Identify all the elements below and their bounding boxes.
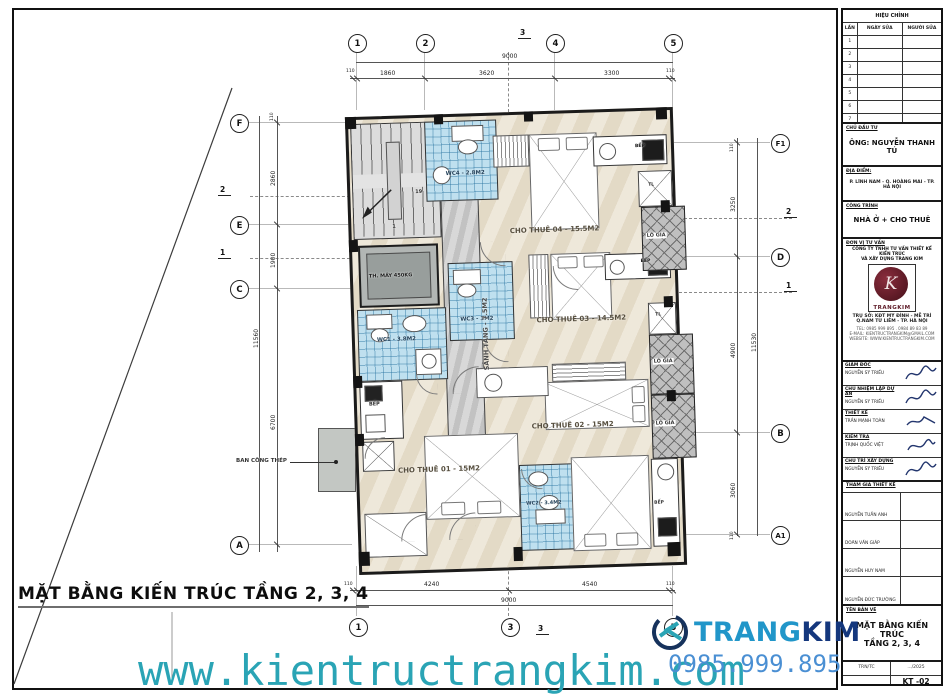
sink-square-icon bbox=[365, 414, 386, 433]
grid-bubble-F: F bbox=[230, 114, 249, 133]
kitchen-left bbox=[359, 381, 404, 440]
toilet-bowl-icon bbox=[458, 139, 478, 155]
pillow bbox=[631, 386, 645, 403]
signature-row-construction-lead: CHỦ TRÌ XÂY DỰNG NGUYỄN SỸ TRIỀU bbox=[843, 458, 941, 482]
meta-date: .../2025 bbox=[891, 662, 941, 675]
kitchen-left-label: BẾP bbox=[369, 401, 380, 407]
sig-role: CHỦ NHIỆM LẬP DỰ ÁN bbox=[845, 387, 899, 397]
grid-bubble-F1: F1 bbox=[771, 134, 790, 153]
meta-number: KT -02 bbox=[891, 676, 941, 684]
revision-title: HIỆU CHỈNH bbox=[843, 10, 941, 23]
room03-label: CHO THUÊ 03 - 14.5M2 bbox=[506, 313, 656, 326]
signature-icon bbox=[904, 461, 938, 479]
location-value: P. LĨNH NAM - Q. HOÀNG MAI - TP. HÀ NỘI bbox=[846, 180, 938, 190]
stove-icon bbox=[658, 517, 678, 537]
footer-website[interactable]: www.kientructrangkim.com bbox=[138, 646, 745, 695]
sig-name: TRỊNH QUỐC VIỆT bbox=[845, 443, 899, 448]
signatures-section: GIÁM ĐỐC NGUYỄN SỸ TRIỀU CHỦ NHIỆM LẬP D… bbox=[843, 362, 941, 482]
grid-bubble-B: B bbox=[771, 424, 790, 443]
footer-logo-trang: TRANG bbox=[694, 617, 801, 648]
grid-bubble-C: C bbox=[230, 280, 249, 299]
investor-section: CHỦ ĐẦU TƯ ÔNG: NGUYỄN THANH TÚ bbox=[843, 124, 941, 167]
loggia-2-label: LÔ GIA bbox=[653, 358, 674, 365]
location-section: ĐỊA ĐIỂM: P. LĨNH NAM - Q. HOÀNG MAI - T… bbox=[843, 167, 941, 202]
wc1-label: WC1 - 3.8M2 bbox=[377, 336, 416, 343]
wc2-label: WC2 - 3.4M2 bbox=[526, 500, 562, 507]
wardrobe-room02 bbox=[552, 362, 627, 382]
rev-row-num: 5 bbox=[843, 88, 858, 100]
balcony-leader-dot bbox=[334, 460, 338, 464]
footer-phone[interactable]: 0985.999.895 bbox=[668, 650, 841, 678]
location-label: ĐỊA ĐIỂM: bbox=[846, 169, 938, 174]
participants-label: THAM GIA THIẾT KẾ bbox=[846, 483, 938, 488]
grid-bubble-1-bottom: 1 bbox=[349, 618, 368, 637]
trangkim-logo: K TRANGKIM bbox=[868, 264, 916, 312]
column bbox=[353, 376, 362, 388]
pillow bbox=[583, 255, 603, 268]
column bbox=[524, 111, 533, 121]
grid-bubble-E: E bbox=[230, 216, 249, 235]
kitchen-room03-label: BẾP bbox=[640, 259, 650, 264]
consultant-company-2: VÀ XÂY DỰNG TRANG KIM bbox=[846, 257, 938, 262]
grid-bubble-3-bottom: 3 bbox=[501, 618, 520, 637]
bed-bottom-right bbox=[571, 455, 652, 551]
sink-icon bbox=[599, 143, 617, 161]
signature-icon bbox=[904, 413, 938, 431]
room-wc4 bbox=[424, 120, 498, 202]
rev-row-num: 3 bbox=[843, 62, 858, 74]
participant-name: NGUYỄN HUY NAM bbox=[843, 549, 901, 576]
wc4-label: WC4 - 2.8M2 bbox=[446, 170, 485, 177]
wardrobe-room04 bbox=[493, 135, 530, 168]
participant-row: NGUYỄN TUẤN ANH bbox=[843, 493, 941, 521]
plan-title-text: MẶT BẰNG KIẾN TRÚC TẦNG 2, 3, 4 bbox=[18, 584, 369, 608]
grid-bubble-1-top: 1 bbox=[348, 34, 367, 53]
participant-name: NGUYỄN TUẤN ANH bbox=[843, 493, 901, 520]
section-mark-2-right: 2 bbox=[784, 207, 797, 218]
participant-row: NGUYỄN ĐỨC TRƯỜNG bbox=[843, 577, 941, 605]
column bbox=[667, 390, 676, 401]
pillow bbox=[441, 502, 465, 516]
sink-icon bbox=[610, 260, 625, 275]
kitchen-room04-label: BẾP bbox=[635, 144, 645, 149]
signature-icon bbox=[904, 365, 938, 383]
revision-table: HIỆU CHỈNH LẦN NGÀY SỬA NGƯỜI SỬA 1 2 3 … bbox=[843, 10, 941, 124]
column bbox=[355, 434, 364, 446]
loggia-1-label: LÔ GIA bbox=[646, 232, 667, 239]
consultant-address-2: Q.NAM TỪ LIÊM - TP. HÀ NỘI bbox=[846, 319, 938, 324]
sig-role: KIỂM TRA bbox=[845, 435, 899, 440]
section-mark-3-bottom: 3 bbox=[536, 624, 549, 635]
pillow bbox=[477, 501, 501, 515]
stove-icon bbox=[364, 385, 382, 402]
consultant-company-1: CÔNG TY TNHH TƯ VẤN THIẾT KẾ KIẾN TRÚC bbox=[846, 247, 938, 257]
sig-name: TRẦN MẠNH TOÀN bbox=[845, 419, 899, 424]
column bbox=[345, 117, 356, 129]
participant-name: NGUYỄN ĐỨC TRƯỜNG bbox=[843, 577, 901, 605]
signature-row-director: GIÁM ĐỐC NGUYỄN SỸ TRIỀU bbox=[843, 362, 941, 386]
participant-row: DOÃN VĂN GIÁP bbox=[843, 521, 941, 549]
project-section: CÔNG TRÌNH NHÀ Ở + CHO THUÊ bbox=[843, 202, 941, 239]
pillow bbox=[584, 533, 606, 547]
rev-row-num: 7 bbox=[843, 114, 858, 124]
grid-bubble-4-top: 4 bbox=[546, 34, 565, 53]
pillow bbox=[566, 137, 588, 151]
room02-label: CHO THUÊ 02 - 15M2 bbox=[498, 419, 648, 432]
balcony-label: BAN CÔNG THÉP bbox=[236, 458, 287, 464]
sig-role: CHỦ TRÌ XÂY DỰNG bbox=[845, 459, 899, 464]
stair-step-1: 1 bbox=[392, 224, 396, 230]
grid-bubble-A: A bbox=[230, 536, 249, 555]
column bbox=[656, 107, 667, 119]
trangkim-logo-circle: K bbox=[874, 267, 908, 301]
building-outline: 19 1 TH. MÁY 450KG SẢNH TẦNG - 7.5M2 WC4… bbox=[345, 107, 687, 575]
column bbox=[359, 552, 370, 566]
balcony-leader-line bbox=[290, 462, 336, 463]
bed-room04 bbox=[529, 132, 600, 230]
participants-section: THAM GIA THIẾT KẾ NGUYỄN TUẤN ANH DOÃN V… bbox=[843, 482, 941, 606]
loggia-3-label: LÔ GIA bbox=[655, 420, 676, 427]
column bbox=[513, 547, 522, 561]
plan-title: MẶT BẰNG KIẾN TRÚC TẦNG 2, 3, 4 bbox=[18, 584, 369, 604]
sig-role: GIÁM ĐỐC bbox=[845, 363, 899, 368]
signature-row-manager: CHỦ NHIỆM LẬP DỰ ÁN NGUYỄN SỸ TRIỀU bbox=[843, 386, 941, 410]
signature-row-checker: KIỂM TRA TRỊNH QUỐC VIỆT bbox=[843, 434, 941, 458]
wardrobe-room03 bbox=[528, 254, 550, 319]
stove-icon bbox=[642, 139, 665, 161]
consultant-label: ĐƠN VỊ TƯ VẤN bbox=[846, 241, 938, 246]
stair-step-19: 19 bbox=[415, 189, 422, 195]
elevator: TH. MÁY 450KG bbox=[358, 243, 440, 307]
participant-row: NGUYỄN HUY NAM bbox=[843, 549, 941, 577]
section-mark-1-left: 1 bbox=[218, 248, 231, 259]
column bbox=[434, 114, 443, 124]
consultant-section: ĐƠN VỊ TƯ VẤN CÔNG TY TNHH TƯ VẤN THIẾT … bbox=[843, 239, 941, 362]
rev-row-num: 2 bbox=[843, 49, 858, 61]
sig-name: NGUYỄN SỸ TRIỀU bbox=[845, 371, 899, 376]
column bbox=[667, 542, 680, 556]
rev-col-lan: LẦN bbox=[843, 23, 858, 35]
pillow bbox=[538, 138, 560, 152]
kitchen-room04 bbox=[593, 134, 668, 166]
project-label: CÔNG TRÌNH bbox=[846, 204, 938, 209]
stair-direction-arrow bbox=[357, 184, 398, 225]
bed-room01 bbox=[424, 433, 521, 520]
toilet-icon bbox=[535, 509, 565, 525]
investor-label: CHỦ ĐẦU TƯ bbox=[846, 126, 938, 131]
signature-icon bbox=[904, 389, 938, 407]
sig-name: NGUYỄN SỸ TRIỀU bbox=[845, 467, 899, 472]
section-mark-2-left: 2 bbox=[218, 185, 231, 196]
door-arc bbox=[364, 437, 386, 459]
trangkim-logo-text: TRANGKIM bbox=[869, 305, 915, 311]
kitchen-br-label: BẾP bbox=[654, 500, 664, 505]
meta-section: TRN/TC .../2025 KT -02 bbox=[843, 662, 941, 684]
trangkim-swirl-icon bbox=[650, 612, 690, 652]
sink-icon bbox=[402, 315, 427, 333]
toilet-bowl-icon bbox=[457, 283, 476, 298]
section-mark-3-top: 3 bbox=[518, 28, 531, 39]
investor-name: ÔNG: NGUYỄN THANH TÚ bbox=[846, 139, 938, 155]
participant-name: DOÃN VĂN GIÁP bbox=[843, 521, 901, 548]
rev-col-ngay: NGÀY SỬA bbox=[858, 23, 903, 35]
sink-icon bbox=[657, 463, 675, 481]
footer-logo-kim: KIM bbox=[801, 617, 860, 648]
section-mark-1-right: 1 bbox=[784, 281, 797, 292]
signature-icon bbox=[904, 437, 938, 455]
grid-bubble-A1: A1 bbox=[771, 526, 790, 545]
grid-bubble-2-top: 2 bbox=[416, 34, 435, 53]
room-wc1 bbox=[357, 307, 448, 382]
grid-bubble-D: D bbox=[771, 248, 790, 267]
door-arc bbox=[416, 373, 438, 395]
rev-row-num: 6 bbox=[843, 101, 858, 113]
trangkim-logo-k: K bbox=[885, 274, 898, 294]
sig-name: NGUYỄN SỸ TRIỀU bbox=[845, 400, 899, 405]
pillow bbox=[616, 532, 638, 546]
column bbox=[664, 296, 673, 307]
grid-bubble-5-top: 5 bbox=[664, 34, 683, 53]
meta-scale: TRN/TC bbox=[843, 662, 891, 675]
rev-row-num: 1 bbox=[843, 36, 858, 48]
rev-col-nguoi: NGƯỜI SỬA bbox=[903, 23, 941, 35]
consultant-website: WEBSITE: WWW.KIENTRUCTRANGKIM.COM bbox=[846, 336, 938, 341]
project-name: NHÀ Ở + CHO THUÊ bbox=[846, 216, 938, 224]
tl-label-1: TL bbox=[648, 183, 654, 188]
bed-room03 bbox=[550, 252, 612, 320]
column bbox=[661, 200, 670, 212]
signature-row-designer: THIẾT KẾ TRẦN MẠNH TOÀN bbox=[843, 410, 941, 434]
room04-label: CHO THUÊ 04 - 15.5M2 bbox=[479, 223, 629, 236]
footer-logo: TRANGKIM bbox=[650, 612, 861, 652]
rev-row-num: 4 bbox=[843, 75, 858, 87]
drawing-sheet: 9000 110 1860 3620 3300 110 110 4240 454… bbox=[0, 0, 950, 697]
title-block: HIỆU CHỈNH LẦN NGÀY SỬA NGƯỜI SỬA 1 2 3 … bbox=[841, 8, 943, 686]
column bbox=[349, 240, 358, 252]
sig-role: THIẾT KẾ bbox=[845, 411, 899, 416]
